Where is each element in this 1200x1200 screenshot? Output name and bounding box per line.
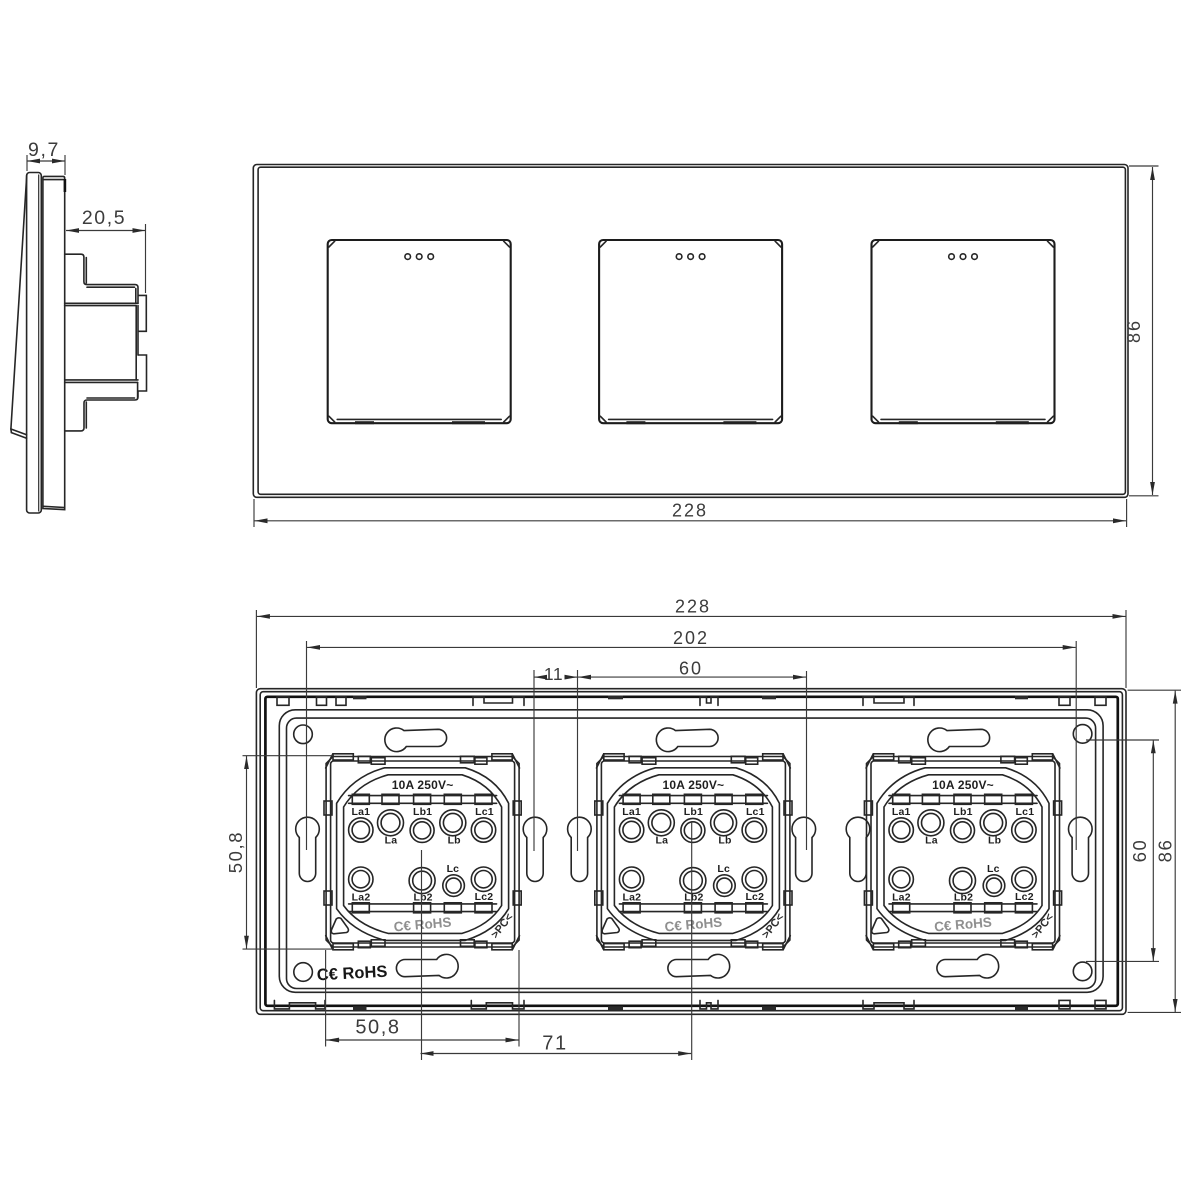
svg-text:60: 60 [1129,839,1150,863]
svg-text:86: 86 [1154,839,1175,863]
svg-text:228: 228 [675,597,711,617]
svg-text:50,8: 50,8 [225,831,246,873]
svg-text:86: 86 [1124,319,1144,343]
svg-text:20,5: 20,5 [82,207,126,229]
svg-text:71: 71 [542,1033,567,1055]
svg-text:9,7: 9,7 [28,139,60,161]
svg-text:202: 202 [673,628,709,648]
svg-text:C€ RoHS: C€ RoHS [316,963,387,985]
svg-text:50,8: 50,8 [355,1017,400,1039]
svg-text:11: 11 [544,664,563,684]
svg-text:60: 60 [679,659,703,679]
svg-text:228: 228 [672,501,708,521]
